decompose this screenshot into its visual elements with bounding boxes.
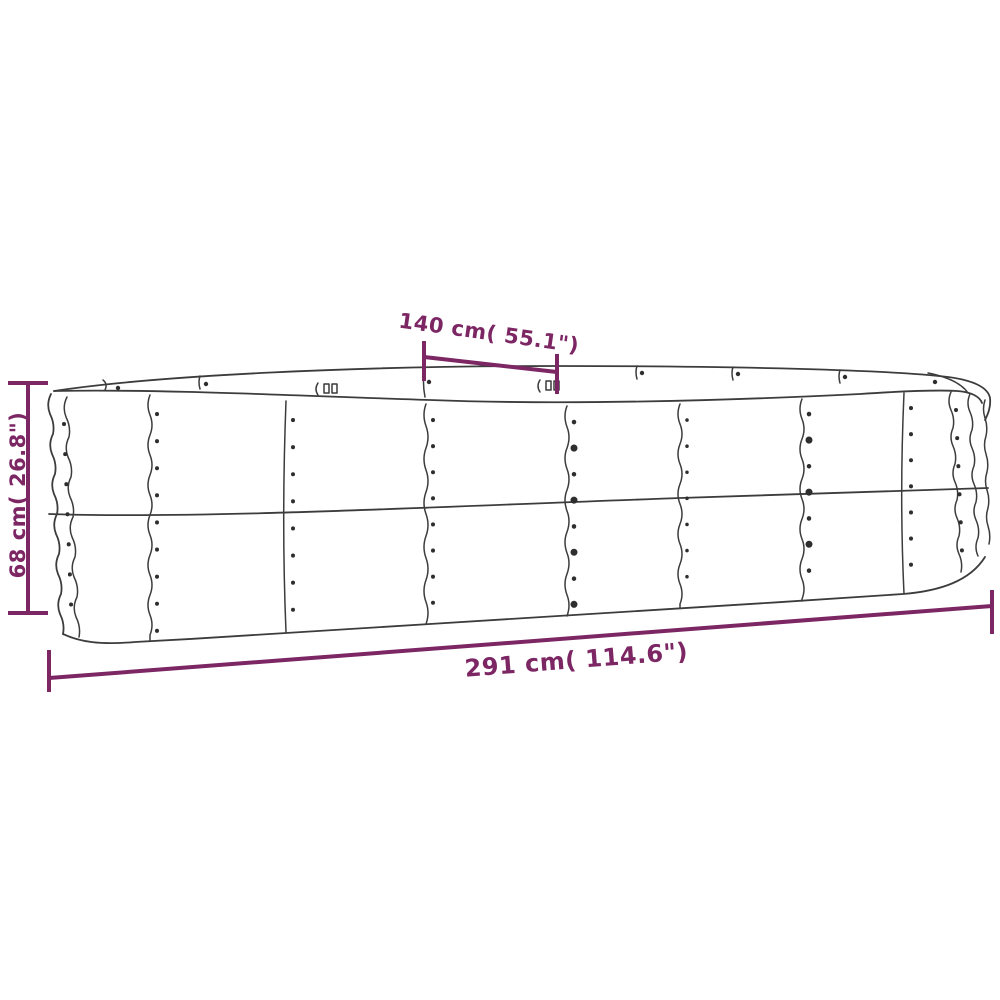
rim-seam-tick-4: [636, 366, 637, 379]
rim-seam-tick-6: [839, 370, 840, 383]
seam-4-wavy: [565, 406, 569, 616]
top-width-line: [424, 357, 557, 372]
rim-seam-tick-2: [199, 376, 200, 389]
height-label: 68 cm( 26.8"): [6, 412, 30, 579]
rim-rivet: [933, 380, 937, 384]
seam-1-wavy: [148, 395, 152, 641]
right-corrugated-1: [949, 392, 962, 572]
right-corrugated-2: [968, 394, 979, 556]
seam-5-wavy: [678, 404, 682, 608]
left-corrugated-inner: [64, 397, 79, 637]
rim-rivet: [427, 380, 431, 384]
middle-seam: [49, 488, 988, 515]
rim-back-edge: [54, 366, 990, 420]
product-dimension-diagram: 140 cm( 55.1") 68 cm( 26.8") 291 cm( 114…: [0, 0, 1000, 1000]
seam-2-straight: [284, 401, 286, 632]
rim-rivet: [640, 371, 644, 375]
planter-body: [48, 392, 990, 643]
rim-seam-tick-5: [732, 367, 733, 380]
planter-drawing: [48, 366, 990, 643]
seam-7-straight: [902, 393, 904, 594]
rim-rivet: [116, 386, 120, 390]
rim-rivet: [204, 382, 208, 386]
dimension-length: 291 cm( 114.6"): [49, 590, 992, 692]
seam-3-wavy: [424, 404, 428, 624]
rim-front-edge: [54, 391, 982, 403]
rim-clip-detail-1: [316, 383, 337, 395]
right-corrugated-3: [984, 400, 990, 544]
rivet-columns: [64, 408, 962, 634]
planter-rim: [54, 366, 990, 420]
rim-rivet: [843, 375, 847, 379]
rim-rivet: [736, 372, 740, 376]
bottom-edge: [63, 557, 985, 643]
seam-6-wavy: [800, 399, 804, 601]
dimension-height: 68 cm( 26.8"): [6, 383, 48, 613]
dimension-top-width: 140 cm( 55.1"): [397, 309, 580, 394]
diagram-canvas: 140 cm( 55.1") 68 cm( 26.8") 291 cm( 114…: [0, 0, 1000, 1000]
